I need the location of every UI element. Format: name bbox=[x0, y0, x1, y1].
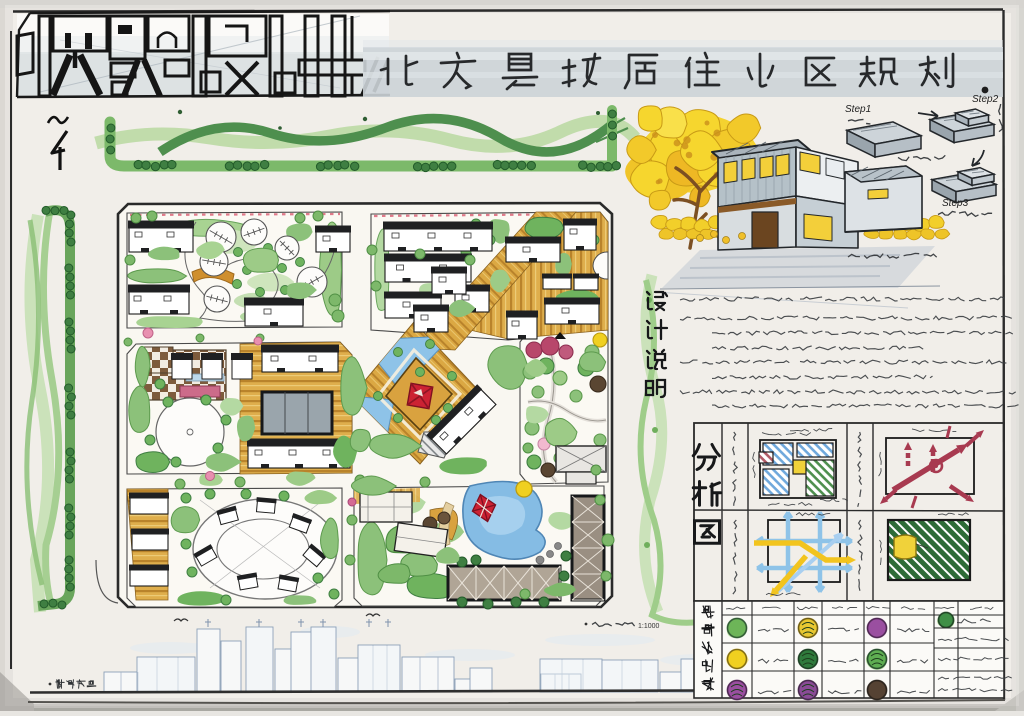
svg-text:Step2: Step2 bbox=[972, 94, 999, 105]
svg-text:Step3: Step3 bbox=[942, 198, 969, 209]
svg-text:1:1000: 1:1000 bbox=[638, 623, 660, 630]
svg-text:Step1: Step1 bbox=[845, 104, 871, 115]
